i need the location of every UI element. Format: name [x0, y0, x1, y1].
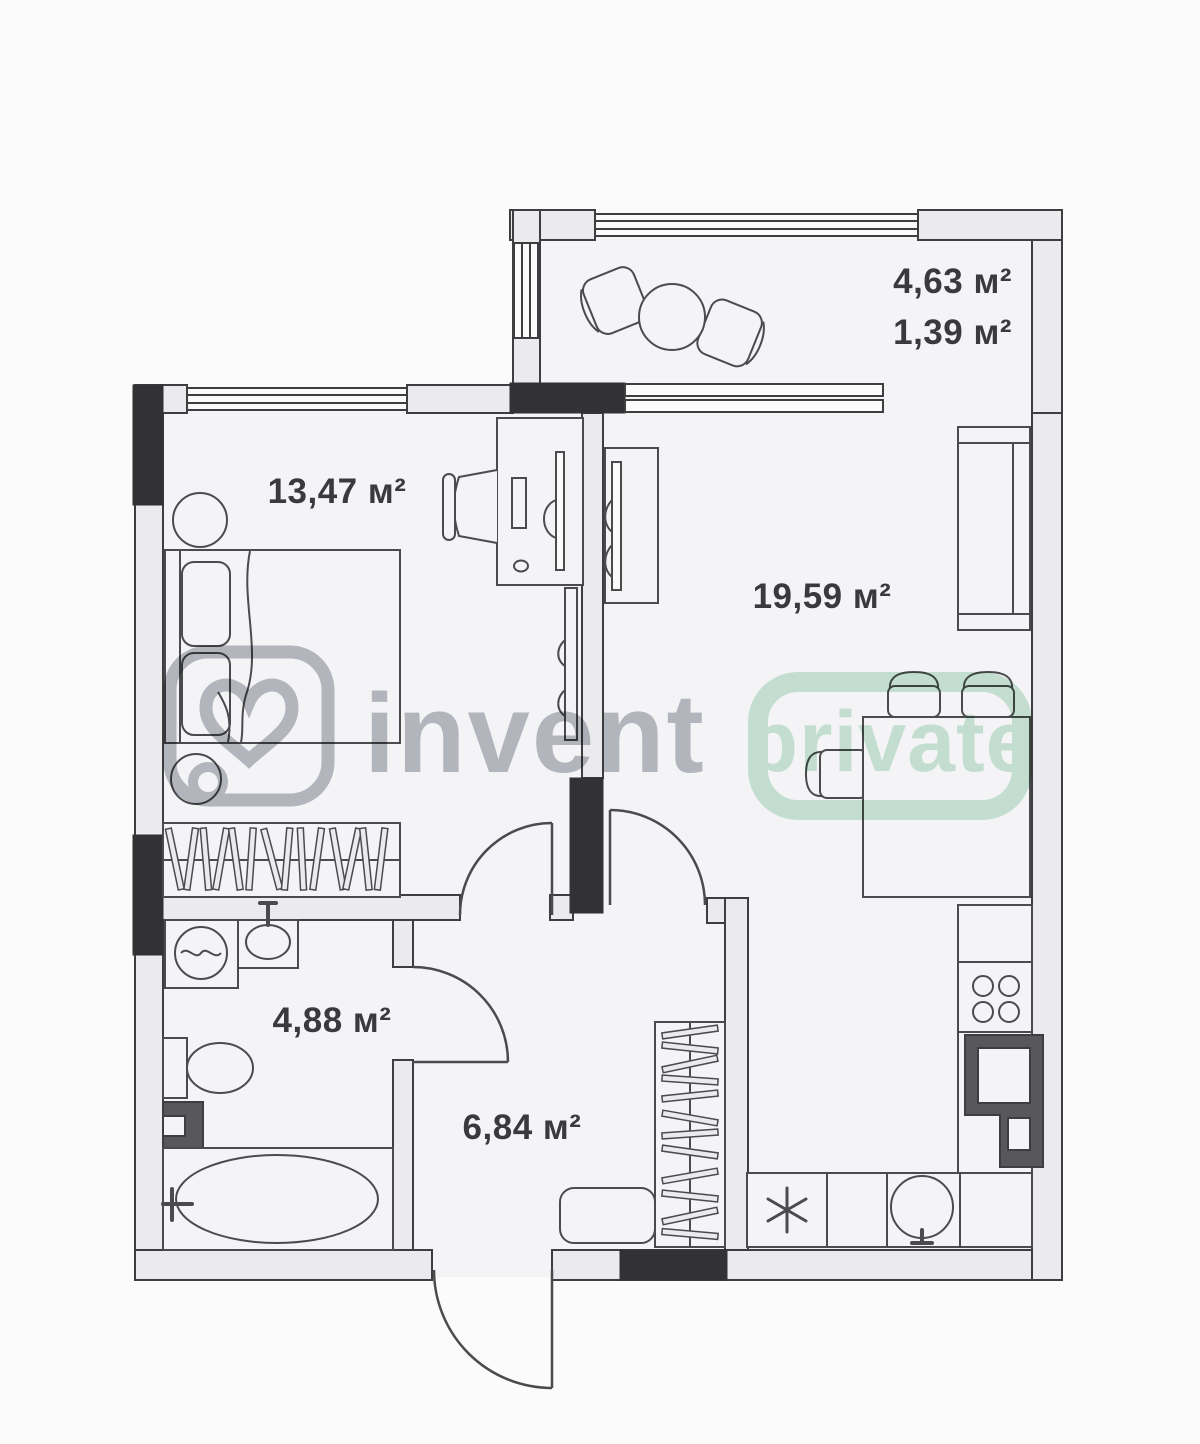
keyboard	[512, 478, 526, 528]
dining-table	[863, 717, 1030, 897]
wall-bottom-left	[135, 1250, 432, 1280]
door-entrance	[434, 1270, 552, 1388]
column-top-center	[510, 383, 625, 413]
wall-left	[135, 385, 163, 1280]
wall-hallway-right	[725, 898, 748, 1250]
wall-bedroom-bottom	[135, 895, 460, 920]
desk	[497, 418, 583, 585]
nightstand-top	[173, 493, 227, 547]
washing-machine	[165, 920, 238, 988]
bathtub	[163, 1148, 393, 1250]
pillow-bottom	[182, 653, 230, 735]
tv-stand-living	[605, 448, 658, 603]
kitchen-counter-bottom	[747, 1173, 1032, 1247]
toilet	[163, 1038, 253, 1098]
window-balcony-top	[595, 214, 918, 236]
floor-plan-drawing	[0, 0, 1200, 1444]
column-left-mid	[133, 835, 163, 955]
wall-bathroom-a	[393, 920, 413, 967]
wall-bedroom-living	[582, 413, 603, 778]
hallway-wardrobe-hangers	[655, 1022, 725, 1247]
mouse	[514, 561, 528, 572]
monitor	[556, 452, 564, 570]
window-bedroom	[187, 388, 407, 410]
sofa	[958, 427, 1030, 630]
desk-chair-back	[443, 474, 455, 540]
wall-top-b	[407, 385, 513, 413]
window-balcony-left	[514, 243, 538, 338]
column-hall-pilaster	[570, 778, 603, 913]
double-bed	[165, 550, 400, 743]
balcony-round-table	[639, 284, 705, 350]
bedroom-wardrobe-hangers	[163, 823, 400, 897]
wall-balcony-top-right	[918, 210, 1062, 240]
hallway-bench	[560, 1188, 655, 1243]
floor-plan-canvas: invent private 4,63 м² 1,39 м² 13,47 м² …	[0, 0, 1200, 1444]
column-left-top	[133, 385, 163, 505]
column-bottom	[620, 1250, 727, 1280]
desk-chair	[454, 470, 497, 543]
wall-bathroom-b	[393, 1060, 413, 1250]
nightstand-bottom	[171, 754, 221, 804]
pillow-top	[182, 562, 230, 646]
